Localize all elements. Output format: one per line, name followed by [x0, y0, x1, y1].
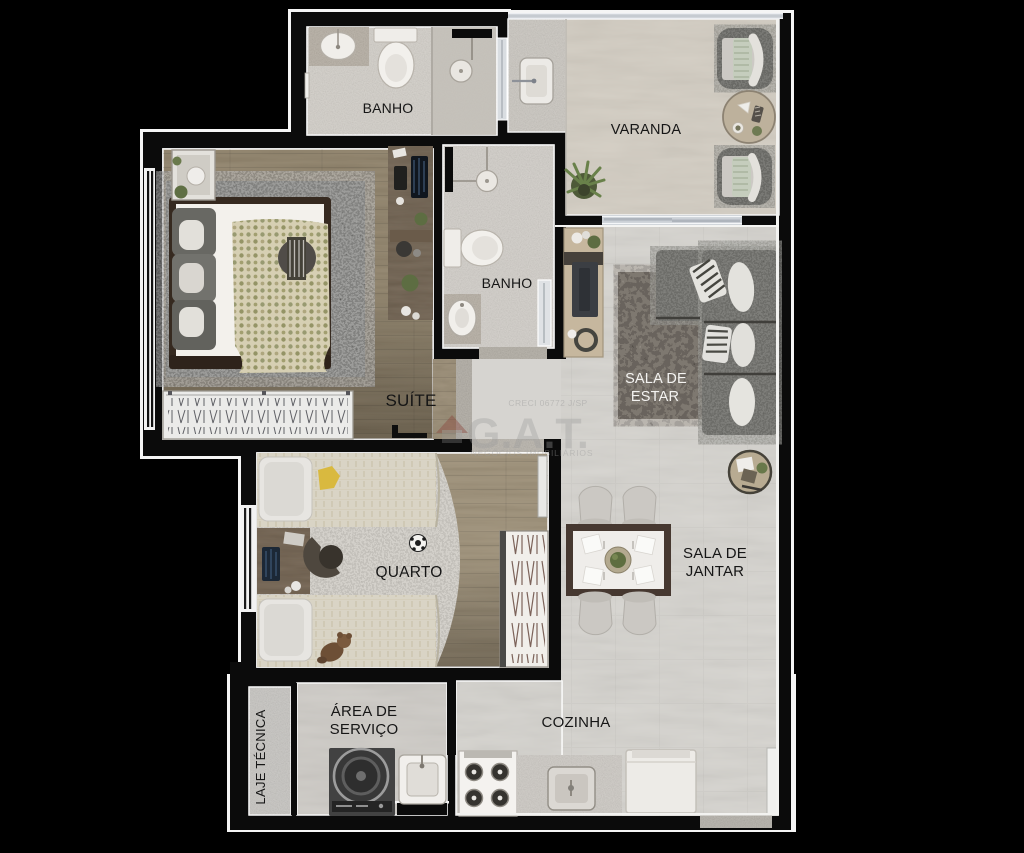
svg-text:QUARTO: QUARTO [376, 564, 443, 581]
svg-text:SUÍTE: SUÍTE [385, 391, 436, 410]
svg-text:CRECI 06772 J/SP: CRECI 06772 J/SP [508, 398, 587, 408]
svg-text:SALA DE: SALA DE [683, 545, 747, 562]
svg-text:LAJE TÉCNICA: LAJE TÉCNICA [253, 709, 268, 804]
svg-text:SALA DE: SALA DE [625, 371, 687, 387]
svg-text:BANHO: BANHO [482, 275, 533, 291]
svg-text:ESTAR: ESTAR [631, 389, 679, 405]
svg-text:ÁREA DE: ÁREA DE [331, 703, 397, 720]
svg-text:VARANDA: VARANDA [611, 122, 682, 138]
svg-text:COZINHA: COZINHA [542, 714, 611, 731]
svg-text:NEGÓCIOS IMOBILIÁRIOS: NEGÓCIOS IMOBILIÁRIOS [471, 448, 594, 458]
svg-text:JANTAR: JANTAR [686, 563, 744, 580]
svg-text:BANHO: BANHO [363, 100, 414, 116]
svg-text:SERVIÇO: SERVIÇO [330, 721, 399, 738]
